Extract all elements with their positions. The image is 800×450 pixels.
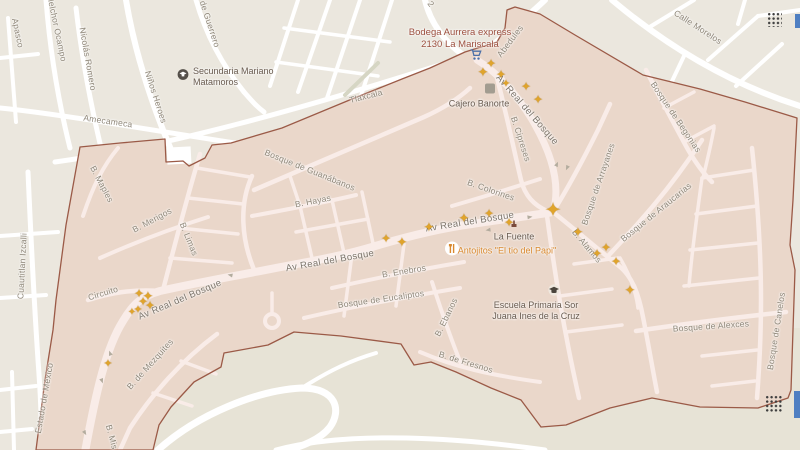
street-label-2: 2 — [425, 0, 436, 9]
one-way-arrow-icon — [107, 350, 112, 356]
street-label-estado-de-m-xico: Estado de México — [33, 362, 55, 434]
street-label-circuito: Circuito — [87, 284, 119, 303]
street-label-b-merigos: B. Merigos — [131, 205, 174, 234]
star-marker[interactable]: ✦ — [138, 294, 148, 308]
map-edge-marker — [795, 14, 800, 28]
one-way-arrow-icon — [485, 228, 491, 233]
star-marker[interactable]: ✦ — [134, 286, 144, 300]
one-way-arrow-icon — [527, 215, 533, 220]
street-label-av-real-del-bosque: Av Real del Bosque — [137, 277, 224, 322]
poi-label-escuela-line2: Juana Ines de la Cruz — [492, 311, 580, 322]
map-overlay-layer: ApascoMelchor OcampoNicolás RomeroNiños … — [0, 0, 800, 450]
graduation-cap-icon[interactable] — [547, 283, 561, 301]
poi-la-fuente[interactable]: La Fuente — [494, 231, 535, 242]
poi-escuela[interactable]: Escuela Primaria SorJuana Ines de la Cru… — [492, 300, 580, 323]
street-label-b-enebros: B. Enebros — [381, 263, 427, 280]
street-label-b-limas: B. Limas — [178, 221, 200, 257]
star-marker[interactable]: ✦ — [501, 77, 510, 90]
poi-label-cajero-line1: Cajero Banorte — [449, 98, 510, 109]
star-marker[interactable]: ✦ — [133, 303, 142, 316]
star-marker[interactable]: ✦ — [573, 224, 584, 240]
poi-secundaria[interactable]: Secundaria MarianoMatamoros — [193, 66, 274, 89]
atm-icon[interactable] — [485, 81, 496, 99]
fountain-icon[interactable] — [511, 215, 518, 233]
street-label-cuautitlan-izcalli: Cuautitlan Izcalli — [15, 233, 28, 300]
poi-label-antojitos-line1: Antojitos "El tio del Papi" — [458, 245, 556, 256]
star-marker[interactable]: ✦ — [143, 288, 154, 304]
street-label-bosque-de-begonias: Bosque de Begonias — [649, 80, 704, 154]
street-label-ni-os-heroes: Niños Heroes — [143, 70, 169, 125]
map-edge-marker — [794, 391, 800, 418]
star-marker[interactable]: ✦ — [496, 67, 506, 81]
star-marker[interactable]: ✦ — [521, 79, 531, 93]
star-marker[interactable]: ✦ — [533, 92, 543, 106]
street-label-melchor-ocampo: Melchor Ocampo — [45, 0, 69, 62]
star-marker[interactable]: ✦ — [103, 357, 112, 370]
star-marker[interactable]: ✦ — [484, 206, 494, 220]
street-label-bosque-de-canelos: Bosque de Canelos — [765, 291, 787, 370]
star-marker[interactable]: ✦ — [459, 210, 470, 226]
street-label-b-maples: B. Maples — [88, 164, 116, 204]
star-marker[interactable]: ✦ — [397, 234, 408, 250]
street-label-nicol-s-romero: Nicolás Romero — [78, 27, 99, 92]
street-label-calle-morelos: Calle Morelos — [672, 8, 724, 46]
street-label-av-real-del-bosque: Av Real del Bosque — [425, 210, 515, 235]
poi-label-bodega-line2: 2130 La Mariscala — [409, 39, 511, 51]
street-label-b-mis: B. Mis — [104, 424, 120, 450]
dot-grid-icon — [767, 12, 782, 27]
street-label-av-real-del-bosque: Av Real del Bosque — [285, 248, 375, 274]
star-marker[interactable]: ✦ — [592, 246, 602, 260]
restaurant-icon[interactable] — [445, 241, 460, 261]
street-label-bosque-de-arrayanes: Bosque de Arrayanes — [579, 142, 616, 227]
star-marker[interactable]: ✦ — [478, 64, 489, 80]
poi-antojitos[interactable]: Antojitos "El tio del Papi" — [458, 245, 556, 256]
school-icon[interactable] — [177, 68, 190, 86]
poi-label-secundaria-line1: Secundaria Mariano — [193, 66, 274, 77]
street-label-bosque-de-araucarias: Bosque de Araucarias — [619, 180, 694, 243]
poi-label-bodega-line1: Bodega Aurrera express — [409, 27, 511, 39]
street-label-amecameca: Amecameca — [83, 113, 133, 130]
poi-label-escuela-line1: Escuela Primaria Sor — [492, 300, 580, 311]
street-label-b-alamos: B. Alamos — [570, 227, 604, 264]
one-way-arrow-icon — [554, 161, 560, 167]
star-marker[interactable]: ✦ — [611, 254, 621, 268]
street-label-b-ebanos: B. Ebanos — [432, 296, 459, 338]
dot-grid-icon — [765, 395, 783, 413]
street-label-tlaxcala: Tlaxcala — [348, 87, 383, 105]
star-marker[interactable]: ✦ — [545, 198, 562, 223]
poi-bodega[interactable]: Bodega Aurrera express2130 La Mariscala — [409, 27, 511, 51]
star-marker[interactable]: ✦ — [486, 56, 496, 70]
street-label-b-colorines: B. Colorines — [466, 177, 516, 203]
shopping-cart-icon[interactable] — [470, 48, 483, 66]
street-label-b-hayas: B. Hayas — [294, 193, 332, 210]
star-marker[interactable]: ✦ — [128, 307, 136, 318]
star-marker[interactable]: ✦ — [625, 282, 636, 298]
one-way-arrow-icon — [82, 430, 88, 436]
street-label-bosque-de-guan-banos: Bosque de Guanábanos — [263, 147, 356, 192]
street-label-bosque-de-alexces: Bosque de Alexces — [672, 318, 749, 333]
poi-label-la-fuente-line1: La Fuente — [494, 231, 535, 242]
map-canvas[interactable]: ApascoMelchor OcampoNicolás RomeroNiños … — [0, 0, 800, 450]
one-way-arrow-icon — [227, 273, 233, 278]
street-label-b-de-fresnos: B. de Fresnos — [438, 349, 495, 375]
one-way-arrow-icon — [99, 378, 104, 384]
street-label-apasco: Apasco — [10, 17, 26, 48]
star-marker[interactable]: ✦ — [145, 298, 155, 312]
street-label-bosque-de-eucaliptos: Bosque de Eucaliptos — [337, 288, 425, 310]
street-label-de-guerrero: de Guerrero — [198, 0, 223, 49]
star-marker[interactable]: ✦ — [601, 240, 611, 254]
street-label-b-cipreses: B. Cipreses — [509, 115, 533, 162]
street-label-b-de-mezquites: B. de Mezquites — [125, 337, 176, 392]
star-marker[interactable]: ✦ — [424, 219, 435, 235]
poi-label-secundaria-line2: Matamoros — [193, 77, 274, 88]
street-label-abedules: Abedules — [495, 23, 526, 59]
street-label-av-real-del-bosque: Av Real del Bosque — [493, 73, 560, 148]
poi-cajero[interactable]: Cajero Banorte — [449, 98, 510, 109]
star-marker[interactable]: ✦ — [381, 231, 391, 245]
one-way-arrow-icon — [564, 165, 570, 171]
